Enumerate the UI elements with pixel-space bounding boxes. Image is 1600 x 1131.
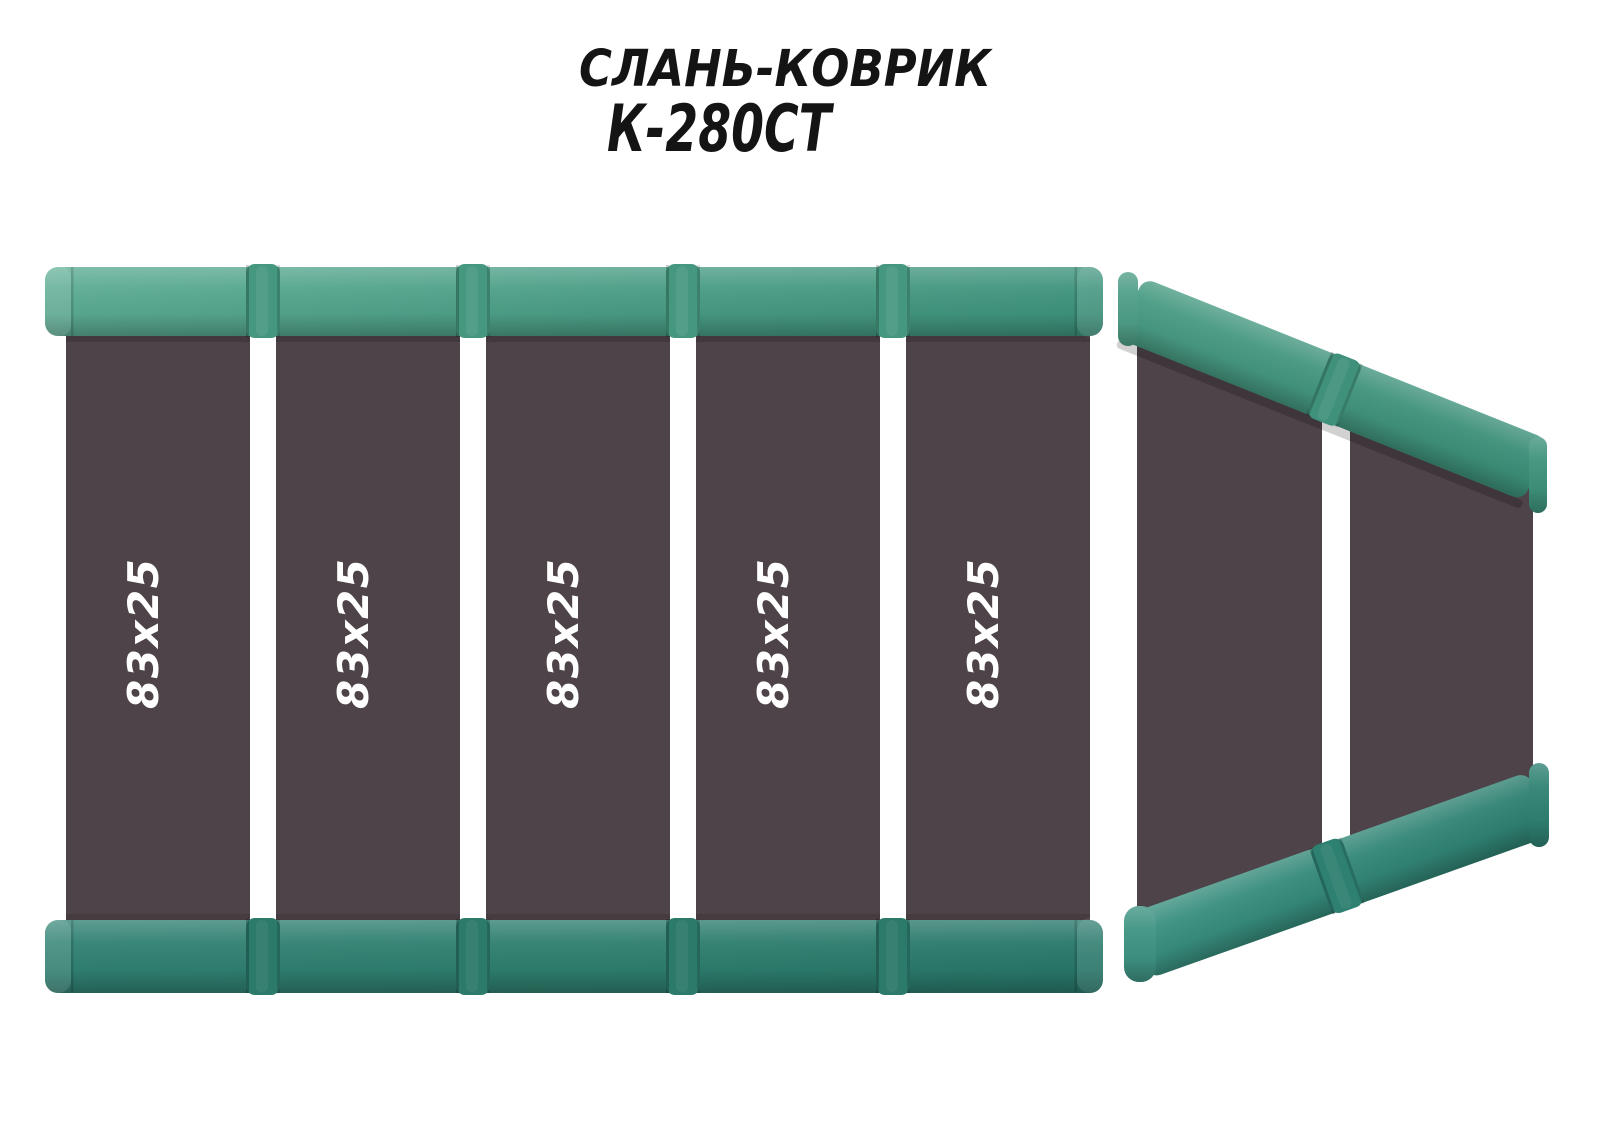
- strip-end-cap: [1529, 763, 1549, 847]
- strip-seam: [456, 264, 490, 338]
- panel-size-label-3: 83х25: [539, 559, 588, 709]
- strip-end-cap: [1529, 437, 1547, 513]
- main-top-strip: [45, 264, 1103, 338]
- panel-size-label-4: 83х25: [749, 559, 798, 709]
- strip-end-cap: [1124, 906, 1156, 982]
- panel-size-label-1: 83х25: [119, 559, 168, 709]
- strip-seam: [876, 918, 910, 995]
- strip-seam: [876, 264, 910, 338]
- panel-size-label-2: 83х25: [329, 559, 378, 709]
- product-type-title: СЛАНЬ-КОВРИК: [579, 40, 993, 99]
- strip-seam: [666, 264, 700, 338]
- strip-seam: [246, 264, 280, 338]
- bow-section: [1116, 272, 1552, 982]
- strip-seam: [666, 918, 700, 995]
- strip-seam: [456, 918, 490, 995]
- strip-end-cap: [1075, 265, 1104, 337]
- product-sheet: СЛАНЬ-КОВРИК К-280СТ 83х25 83х25 83х25 8…: [0, 0, 1600, 1131]
- panel-size-label-5: 83х25: [959, 559, 1008, 709]
- main-mat-section: 83х25 83х25 83х25 83х25 83х25: [45, 264, 1103, 995]
- strip-end-cap: [1075, 918, 1104, 993]
- strip-end-cap: [45, 918, 74, 993]
- product-model-title: К-280СТ: [607, 92, 834, 167]
- mat-diagram: СЛАНЬ-КОВРИК К-280СТ 83х25 83х25 83х25 8…: [0, 0, 1600, 1131]
- strip-end-cap: [1118, 272, 1138, 346]
- main-bottom-strip: [45, 918, 1103, 995]
- strip-end-cap: [45, 265, 74, 337]
- strip-seam: [246, 918, 280, 995]
